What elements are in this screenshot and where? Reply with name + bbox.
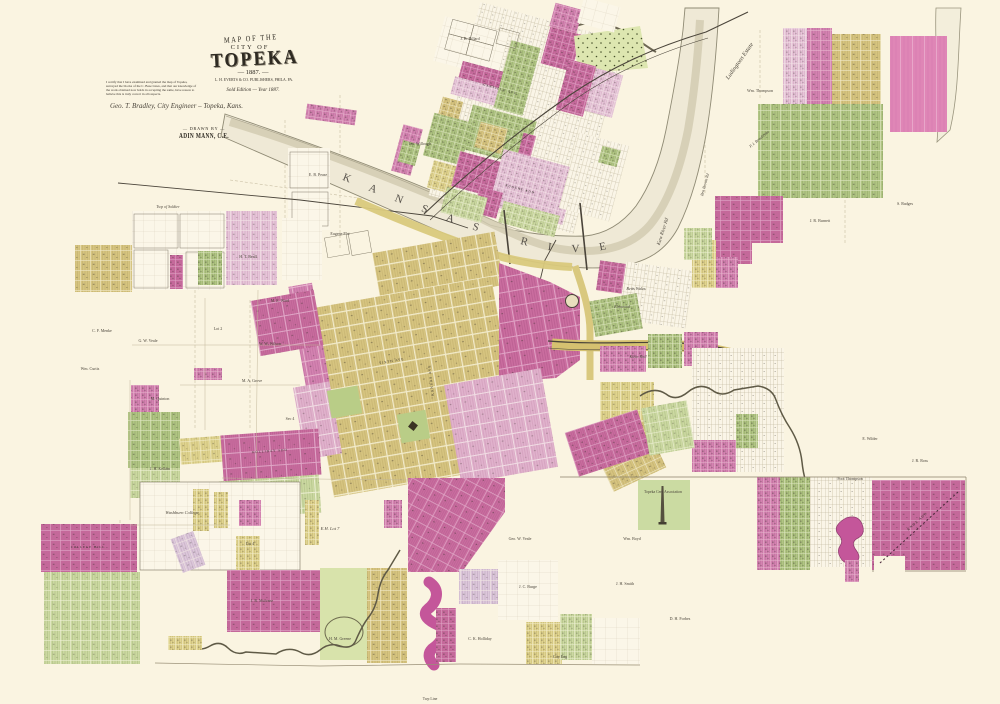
svg-text:E. Wilder: E. Wilder — [862, 436, 878, 441]
svg-text:Sec 4: Sec 4 — [286, 416, 295, 421]
svg-text:J. H. Kellam: J. H. Kellam — [150, 466, 171, 471]
svg-text:C. F. Menke: C. F. Menke — [92, 328, 112, 333]
svg-text:J. R. Mulvane: J. R. Mulvane — [251, 598, 274, 603]
svg-text:Klein Roll: Klein Roll — [628, 354, 647, 359]
svg-text:Betts Wales: Betts Wales — [626, 286, 646, 291]
svg-text:Washburn College: Washburn College — [165, 510, 198, 515]
svg-text:E. B. Pease: E. B. Pease — [309, 172, 327, 177]
svg-text:G. W. Veale: G. W. Veale — [138, 338, 157, 343]
svg-text:C. K. Holliday: C. K. Holliday — [468, 636, 492, 641]
svg-text:Ins. Willough: Ins. Willough — [409, 141, 431, 146]
svg-text:J. R. Ross: J. R. Ross — [912, 458, 928, 463]
svg-text:Lot 4: Lot 4 — [246, 541, 255, 546]
svg-text:Lot 2: Lot 2 — [214, 326, 223, 331]
svg-text:believe this is truly correct: believe this is truly correct in all res… — [106, 92, 161, 96]
svg-text:Wm. Curtis: Wm. Curtis — [81, 366, 100, 371]
svg-text:— 1887. —: — 1887. — — [237, 69, 269, 76]
svg-text:Topeka Cem Association: Topeka Cem Association — [644, 490, 682, 494]
svg-text:J. B. Billard: J. B. Billard — [460, 36, 479, 41]
svg-text:Twp of Soldier: Twp of Soldier — [156, 204, 180, 209]
svg-text:M. A. Grove: M. A. Grove — [242, 378, 262, 383]
svg-text:ADIN MANN, C.E.: ADIN MANN, C.E. — [179, 132, 229, 140]
svg-text:— DRAWN BY —: — DRAWN BY — — [182, 126, 225, 131]
svg-text:H. T. Beall: H. T. Beall — [239, 254, 257, 259]
svg-text:Geo. T. Bradley, City Engineer: Geo. T. Bradley, City Engineer – Topeka,… — [110, 102, 243, 110]
svg-text:H. M. Greene: H. M. Greene — [329, 636, 351, 641]
svg-text:J. R. Burnett: J. R. Burnett — [810, 218, 831, 223]
svg-text:City Eng: City Eng — [553, 654, 567, 659]
svg-text:Geo. W. Veale: Geo. W. Veale — [509, 536, 532, 541]
svg-text:E.H. Lot 7: E.H. Lot 7 — [320, 526, 341, 531]
svg-text:M. Quinton: M. Quinton — [151, 396, 170, 401]
svg-text:Wm. Thompson: Wm. Thompson — [747, 88, 773, 93]
svg-text:Sold Edition — Year 1887.: Sold Edition — Year 1887. — [226, 88, 279, 93]
svg-text:M. E. Ward: M. E. Ward — [271, 298, 290, 303]
svg-text:Twp Line: Twp Line — [423, 697, 438, 701]
svg-text:J. H. Smith: J. H. Smith — [616, 581, 634, 586]
svg-text:J. C. Burge: J. C. Burge — [519, 584, 537, 589]
svg-text:Elmwood: Elmwood — [613, 304, 631, 309]
svg-text:D. H. Forbes: D. H. Forbes — [670, 616, 691, 621]
svg-text:Eugene Plat: Eugene Plat — [330, 231, 350, 236]
svg-text:Foot Thompson: Foot Thompson — [837, 476, 862, 481]
svg-text:COLLEGE HILL: COLLEGE HILL — [71, 545, 106, 549]
svg-text:W. W. Wilson: W. W. Wilson — [259, 341, 281, 346]
svg-text:Wm. Boyd: Wm. Boyd — [623, 536, 641, 541]
svg-text:S. Radges: S. Radges — [897, 201, 913, 206]
